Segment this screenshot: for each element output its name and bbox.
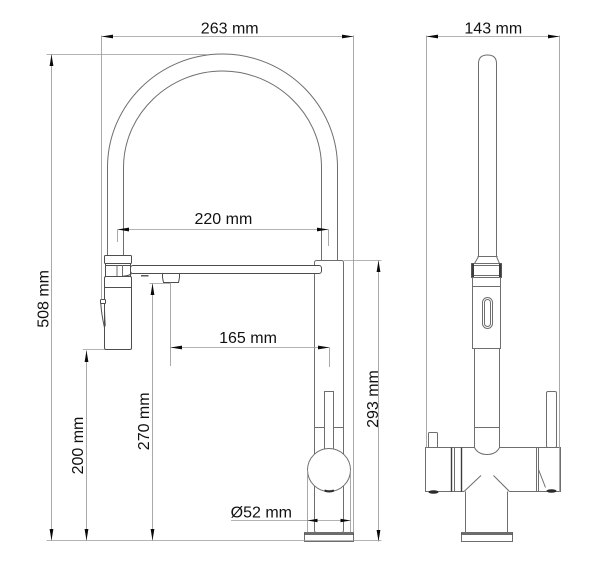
svg-text:220 mm: 220 mm (195, 211, 253, 228)
svg-text:508 mm: 508 mm (35, 270, 52, 328)
svg-text:143 mm: 143 mm (464, 21, 522, 38)
svg-text:293 mm: 293 mm (365, 370, 382, 428)
svg-text:263 mm: 263 mm (201, 21, 259, 38)
svg-text:165 mm: 165 mm (219, 330, 277, 347)
svg-text:Ø52 mm: Ø52 mm (231, 504, 292, 521)
svg-text:200 mm: 200 mm (70, 417, 87, 475)
svg-text:270 mm: 270 mm (136, 392, 153, 450)
